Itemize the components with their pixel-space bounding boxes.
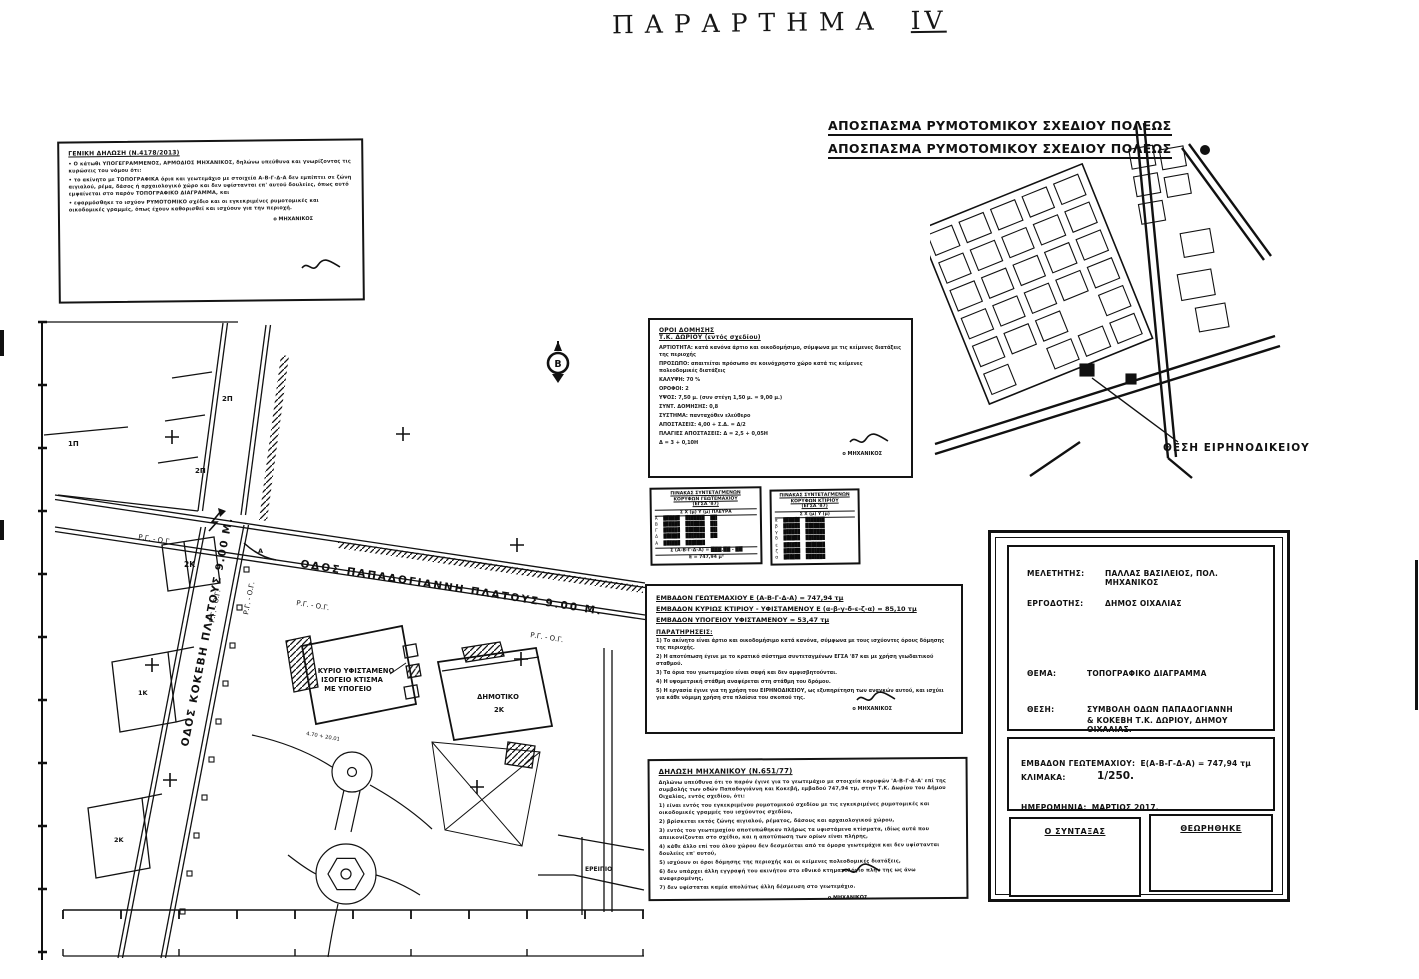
ergodotis-value: ΔΗΜΟΣ ΟΙΧΑΛΙΑΣ xyxy=(1105,599,1182,608)
table-title: ΠΙΝΑΚΑΣ ΣΥΝΤΕΤΑΓΜΕΝΩΝΚΟΡΥΦΩΝ ΓΕΩΤΕΜΑΧΙΟΥ… xyxy=(655,490,757,508)
scale-label: ΚΛΙΜΑΚΑ: xyxy=(1021,773,1066,782)
rg-og-label: Ρ.Γ. - Ο.Γ. xyxy=(530,631,564,644)
area-lines: ΕΜΒΑΔΟΝ ΓΕΩΤΕΜΑΧΙΟΥ Ε (Α-Β-Γ-Δ-Α) = 747,… xyxy=(656,593,952,626)
scale-value: 1/250. xyxy=(1097,770,1134,782)
title-block-info: ΜΕΛΕΤΗΤΗΣ: ΠΑΛΛΑΣ ΒΑΣΙΛΕΙΟΣ, ΠΟΛ. ΜΗΧΑΝΙ… xyxy=(1007,545,1275,731)
street-kokevi-edges xyxy=(118,323,276,958)
area-value: Ε(Α-Β-Γ-Δ-Α) = 747,94 τμ xyxy=(1140,759,1251,768)
area-label: ΕΜΒΑΔΟΝ ΓΕΩΤΕΜΑΧΙΟΥ: xyxy=(1021,759,1135,768)
coords-table-building: ΠΙΝΑΚΑΣ ΣΥΝΤΕΤΑΓΜΕΝΩΝΚΟΡΥΦΩΝ ΚΤΙΡΙΟΥ(ΕΓΣ… xyxy=(769,488,860,565)
terms-line: ΣΥΝΤ. ΔΟΜΗΣΗΣ: 0,8 xyxy=(659,404,902,411)
signature-label: ο ΜΗΧΑΝΙΚΟΣ xyxy=(659,895,867,902)
ergodotis-label: ΕΡΓΟΔΟΤΗΣ: xyxy=(1027,599,1083,608)
approval-signature-title: ΘΕΩΡΗΘΗΚΕ xyxy=(1151,824,1271,833)
plaza-paths xyxy=(252,735,432,957)
signature-label: ο ΜΗΧΑΝΙΚΟΣ xyxy=(656,706,892,712)
date-row: ΗΜΕΡΟΜΗΝΙΑ: ΜΑΡΤΙΟΣ 2017. xyxy=(1021,795,1159,814)
callout-leader-line xyxy=(1092,378,1178,442)
city-main-roads xyxy=(935,123,1280,478)
site-plan: ΟΔΟΣ ΠΑΠΑΔΟΓΙΑΝΝΗ ΠΛΑΤΟΥΣ 9.00 Μ. ΟΔΟΣ Κ… xyxy=(38,315,648,965)
area-line: ΕΜΒΑΔΟΝ ΓΕΩΤΕΜΑΧΙΟΥ Ε (Α-Β-Γ-Δ-Α) = 747,… xyxy=(656,593,952,604)
signature-squiggle xyxy=(840,862,882,878)
date-value: ΜΑΡΤΙΟΣ 2017. xyxy=(1092,803,1159,812)
building-main-label-1: ΚΥΡΙΟ ΥΦΙΣΤΑΜΕΝΟ xyxy=(318,667,395,675)
engineer-declaration-box: ΔΗΛΩΣΗ ΜΗΧΑΝΙΚΟΥ (Ν.651/77) Δηλώνω υπεύθ… xyxy=(648,757,969,901)
general-notes-lines: • Ο κάτωθι ΥΠΟΓΕΓΡΑΜΜΕΝΟΣ, ΑΡΜΟΔΙΟΣ ΜΗΧΑ… xyxy=(68,159,353,215)
melatitis-value: ΠΑΛΛΑΣ ΒΑΣΙΛΕΙΟΣ, ΠΟΛ. ΜΗΧΑΝΙΚΟΣ xyxy=(1105,569,1273,587)
declaration-line: 3) εντός του γεωτεμαχίου αποτυπώθηκαν πλ… xyxy=(659,826,957,842)
general-notes-heading: ΓΕΝΙΚΗ ΔΗΛΩΣΗ (Ν.4178/2013) xyxy=(68,148,352,158)
author-signature-box: Ο ΣΥΝΤΑΞΑΣ xyxy=(1009,817,1141,897)
table-title: ΠΙΝΑΚΑΣ ΣΥΝΤΕΤΑΓΜΕΝΩΝΚΟΡΥΦΩΝ ΚΤΙΡΙΟΥ(ΕΓΣ… xyxy=(775,492,855,510)
terms-line: ΚΑΛΥΨΗ: 70 % xyxy=(659,377,902,384)
general-note-line: • το ακίνητο με ΤΟΠΟΓΡΑΦΙΚΑ όρια και γεω… xyxy=(69,175,353,199)
building-main-label-3: ΜΕ ΥΠΟΓΕΙΟ xyxy=(324,685,372,693)
area-line: ΕΜΒΑΔΟΝ ΥΠΟΓΕΙΟΥ ΥΦΙΣΤΑΜΕΝΟΥ = 53,47 τμ xyxy=(656,615,952,626)
declaration-line: 1) είναι εντός του εγκεκριμένου ρυμοτομι… xyxy=(659,801,957,817)
parcel-lines-bottom-right xyxy=(538,648,644,915)
signature-label: ο ΜΗΧΑΝΙΚΟΣ xyxy=(69,216,313,225)
thesi-label: ΘΕΣΗ: xyxy=(1027,705,1054,714)
remark-line: 2) Η αποτύπωση έγινε με το κρατικό σύστη… xyxy=(656,654,952,668)
scan-artifact xyxy=(1415,560,1418,710)
thesi-value-1: ΣΥΜΒΟΛΗ ΟΔΩΝ ΠΑΠΑΔΟΓΙΑΝΝΗ xyxy=(1087,705,1233,714)
terms-line: ΣΥΣΤΗΜΑ: πανταχόθεν ελεύθερο xyxy=(659,413,902,420)
building-municipal-label-2: 2Κ xyxy=(494,706,505,714)
table-title-line: (ΕΓΣΑ '87) xyxy=(775,504,855,511)
thesi-value-2: & ΚΟΚΕΒΗ Τ.Κ. ΔΩΡΙΟΥ, ΔΗΜΟΥ ΟΙΧΑΛΙΑΣ. xyxy=(1087,716,1273,734)
signature-squiggle xyxy=(855,690,897,706)
parcel-label: 2Κ xyxy=(184,560,196,569)
title-block-meta: ΕΜΒΑΔΟΝ ΓΕΩΤΕΜΑΧΙΟΥ: Ε(Α-Β-Γ-Δ-Α) = 747,… xyxy=(1007,737,1275,811)
remark-line: 1) Το ακίνητο είναι άρτιο και οικοδομήσι… xyxy=(656,638,952,652)
title-block: ΜΕΛΕΤΗΤΗΣ: ΠΑΛΛΑΣ ΒΑΣΙΛΕΙΟΣ, ΠΟΛ. ΜΗΧΑΝΙ… xyxy=(988,530,1290,902)
parcel-label: 1Π xyxy=(68,440,79,448)
declaration-lines: Δηλώνω υπεύθυνα ότι το παρόν έγινε για τ… xyxy=(659,778,958,892)
parcel-label: 2Κ xyxy=(114,836,125,844)
city-plan-excerpt xyxy=(930,112,1340,480)
general-note-line: • εφαρμόσθηκε το ισχύον ΡΥΜΟΤΟΜΙΚΟ σχέδι… xyxy=(69,198,353,215)
author-signature-title: Ο ΣΥΝΤΑΞΑΣ xyxy=(1011,827,1139,836)
building-main-outline xyxy=(286,626,421,724)
remark-line: 5) Η εργασία έγινε για τη χρήση του ΕΙΡΗ… xyxy=(656,688,952,702)
courthouse-block xyxy=(1080,364,1094,376)
building-municipal-outline xyxy=(438,642,552,768)
general-notes-box: ΓΕΝΙΚΗ ΔΗΛΩΣΗ (Ν.4178/2013) • Ο κάτωθι Υ… xyxy=(57,138,365,303)
reference-dot xyxy=(1200,145,1210,155)
courthouse-callout: ΘΕΣΗ ΕΙΡΗΝΟΔΙΚΕΙΟΥ xyxy=(1163,442,1310,454)
table-rows: α ██████ ███████β ██████ ███████γ ██████… xyxy=(775,517,856,562)
vertex-label-a: Α xyxy=(258,547,263,555)
scan-artifact xyxy=(0,330,4,356)
signature-squiggle xyxy=(300,258,342,274)
declaration-line: 4) κάθε άλλο επί του όλου χώρου δεν δεσμ… xyxy=(659,842,957,858)
remark-lines: 1) Το ακίνητο είναι άρτιο και οικοδομήσι… xyxy=(656,638,952,702)
rg-og-label: Ρ.Γ. - Ο.Γ. xyxy=(296,599,330,612)
city-blocks-east xyxy=(1129,138,1229,339)
building-terms-box: ΟΡΟΙ ΔΟΜΗΣΗΣ Τ.Κ. ΔΩΡΙΟΥ (εντός σχεδίου)… xyxy=(648,318,913,478)
city-blocks-grid xyxy=(930,164,1153,404)
scanned-sheet: ΠΑΡΑΡΤΗΜΑIV ΓΕΝΙΚΗ ΔΗΛΩΣΗ (Ν.4178/2013) … xyxy=(0,0,1419,979)
area-row: ΕΜΒΑΔΟΝ ΓΕΩΤΕΜΑΧΙΟΥ: Ε(Α-Β-Γ-Δ-Α) = 747,… xyxy=(1021,751,1251,770)
remark-line: 3) Τα όρια του γεωτεμαχίου είναι σαφή κα… xyxy=(656,670,952,677)
parcel-lines-left xyxy=(88,647,194,878)
table-footer-line: Ε = 747,94 μ² xyxy=(655,553,757,561)
sidewalk-hatch-papadogianni xyxy=(338,541,643,593)
declaration-line: 2) βρίσκεται εκτός ζώνης αιγιαλού, ρέματ… xyxy=(659,817,957,826)
terms-line: ΟΡΟΦΟΙ: 2 xyxy=(659,386,902,393)
parcel-label: 1Κ xyxy=(138,689,149,697)
melatitis-label: ΜΕΛΕΤΗΤΗΣ: xyxy=(1027,569,1084,578)
terms-heading-2: Τ.Κ. ΔΩΡΙΟΥ (εντός σχεδίου) xyxy=(659,334,902,341)
building-municipal-label-1: ΔΗΜΟΤΙΚΟ xyxy=(477,693,519,701)
coords-table-parcel: ΠΙΝΑΚΑΣ ΣΥΝΤΕΤΑΓΜΕΝΩΝΚΟΡΥΦΩΝ ΓΕΩΤΕΜΑΧΙΟΥ… xyxy=(649,486,762,566)
handwritten-title-numeral: IV xyxy=(910,6,946,35)
general-note-line: • Ο κάτωθι ΥΠΟΓΕΓΡΑΜΜΕΝΟΣ, ΑΡΜΟΔΙΟΣ ΜΗΧΑ… xyxy=(68,159,352,176)
approval-signature-box: ΘΕΩΡΗΘΗΚΕ xyxy=(1149,814,1273,892)
table-row: α ██████ ███████ xyxy=(775,554,855,561)
declaration-heading: ΔΗΛΩΣΗ ΜΗΧΑΝΙΚΟΥ (Ν.651/77) xyxy=(659,766,957,776)
handwritten-title-word: ΠΑΡΑΡΤΗΜΑ xyxy=(612,7,885,40)
parcel-label: 2Π xyxy=(195,467,206,475)
declaration-line: Δηλώνω υπεύθυνα ότι το παρόν έγινε για τ… xyxy=(659,778,957,801)
terms-line: ΥΨΟΣ: 7,50 μ. (συν στέγη 1,50 μ. = 9,00 … xyxy=(659,395,902,402)
terms-heading-1: ΟΡΟΙ ΔΟΜΗΣΗΣ xyxy=(659,327,902,334)
date-label: ΗΜΕΡΟΜΗΝΙΑ: xyxy=(1021,803,1087,812)
plan-ruler-bottom xyxy=(63,910,644,956)
remarks-heading: ΠΑΡΑΤΗΡΗΣΕΙΣ: xyxy=(656,629,952,636)
thema-label: ΘΕΜΑ: xyxy=(1027,669,1056,678)
city-block-solid xyxy=(1126,374,1136,384)
signature-squiggle xyxy=(848,432,890,448)
areas-box: ΕΜΒΑΔΟΝ ΓΕΩΤΕΜΑΧΙΟΥ Ε (Α-Β-Γ-Δ-Α) = 747,… xyxy=(645,584,963,734)
handwritten-title: ΠΑΡΑΡΤΗΜΑIV xyxy=(612,6,947,40)
terms-line: ΠΡΟΣΩΠΟ: απαιτείται πρόσωπο σε κοινόχρησ… xyxy=(659,361,902,375)
terms-line: ΑΠΟΣΤΑΣΕΙΣ: 4,00 + Σ.Δ. = Δ/2 xyxy=(659,422,902,429)
rg-og-label: Ρ.Γ. - Ο.Γ. xyxy=(242,581,256,615)
ruin-label: ΕΡΕΙΠΙΟ xyxy=(585,866,612,873)
table-footer: Σ (Α-Β-Γ-Δ-Α) = ███,██ - ██Ε = 747,94 μ² xyxy=(655,546,757,561)
declaration-line: 5) ισχύουν οι όροι δόμησης της περιοχής … xyxy=(659,858,957,867)
table-footer-line: Σ (Α-Β-Γ-Δ-Α) = ███,██ - ██ xyxy=(655,546,757,554)
remark-line: 4) Η υψομετρική στάθμη αναφέρεται στη στ… xyxy=(656,679,952,686)
table-rows: Α ██████ ███████ ██▌Β ██████ ███████ ██▌… xyxy=(655,515,757,547)
thema-value: ΤΟΠΟΓΡΑΦΙΚΟ ΔΙΑΓΡΑΜΜΑ xyxy=(1087,669,1207,678)
north-letter: Β xyxy=(554,359,561,370)
terms-line: ΑΡΤΙΟΤΗΤΑ: κατά κανόνα άρτιο και οικοδομ… xyxy=(659,345,902,359)
signature-label: ο ΜΗΧΑΝΙΚΟΣ xyxy=(659,451,882,457)
declaration-line: 7) δεν υφίσταται καμία απολύτως άλλη δέσ… xyxy=(659,883,957,892)
building-main-label-2: ΙΣΟΓΕΙΟ ΚΤΙΣΜΑ xyxy=(321,676,383,684)
dimension-label: 4.70 + 20.01 xyxy=(306,731,341,743)
street-label-papadogianni: ΟΔΟΣ ΠΑΠΑΔΟΓΙΑΝΝΗ ΠΛΑΤΟΥΣ 9.00 Μ. xyxy=(300,558,604,618)
area-line: ΕΜΒΑΔΟΝ ΚΥΡΙΩΣ ΚΤΙΡΙΟΥ - ΥΦΙΣΤΑΜΕΝΟΥ Ε (… xyxy=(656,604,952,615)
scan-artifact xyxy=(0,520,4,540)
parcel-label: 2Π xyxy=(222,395,233,403)
declaration-line: 6) δεν υπάρχει άλλη εγγραφή του ακινήτου… xyxy=(659,867,957,883)
